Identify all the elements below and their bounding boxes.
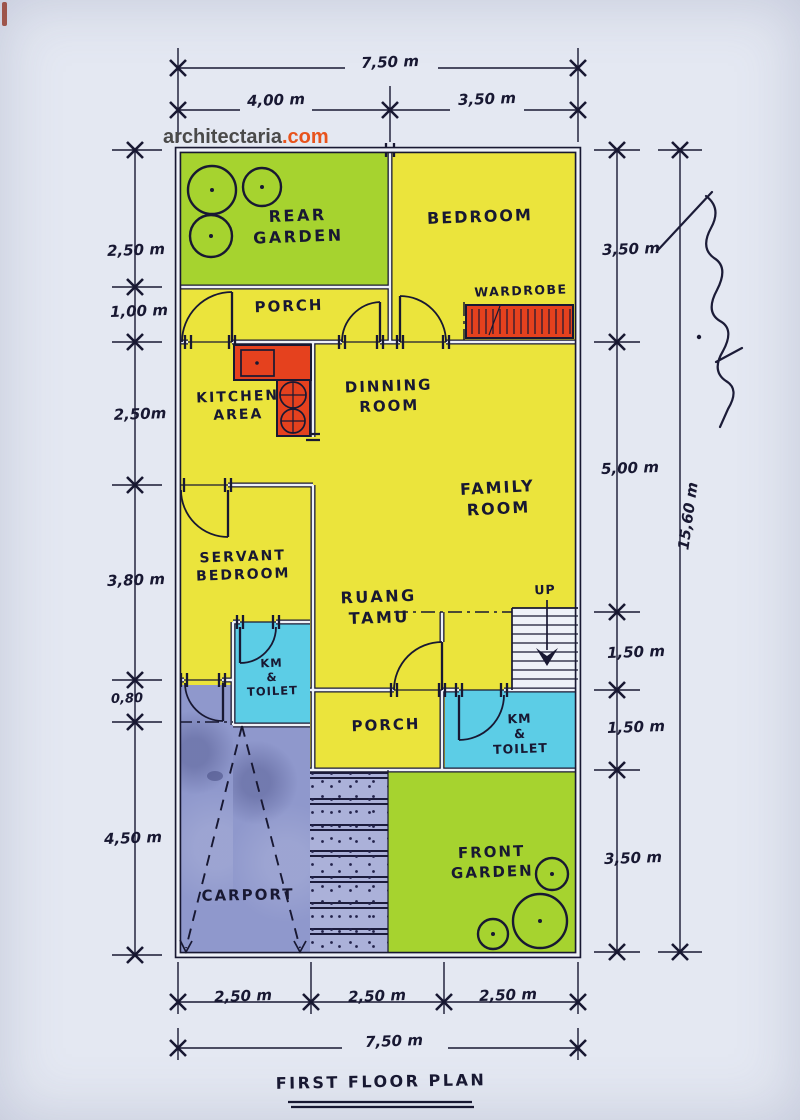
dim-top-total: 7,50 m bbox=[361, 52, 419, 72]
watermark-tld: .com bbox=[282, 126, 329, 148]
room-label-rear-garden: REARGARDEN bbox=[252, 204, 344, 249]
dim-left-1: 2,50 m bbox=[107, 240, 165, 260]
watermark: architectaria.com bbox=[163, 126, 329, 149]
dim-left-6: 4,50 m bbox=[104, 828, 162, 848]
dim-left-3: 2,50m bbox=[113, 404, 166, 424]
architect-signature bbox=[658, 192, 742, 427]
dim-bottom-1: 2,50 m bbox=[214, 986, 272, 1006]
room-label-km-toilet-right: KM&TOILET bbox=[492, 710, 548, 757]
room-label-km-toilet-left: KM&TOILET bbox=[246, 656, 298, 699]
dim-left-2: 1,00 m bbox=[110, 301, 168, 321]
watermark-name: architectaria bbox=[163, 126, 282, 148]
room-label-carport: CARPORT bbox=[201, 885, 294, 906]
room-label-bedroom: BEDROOM bbox=[427, 205, 534, 229]
dim-right-total: 15,60 m bbox=[674, 481, 701, 551]
room-label-dinning: DINNINGROOM bbox=[345, 375, 434, 417]
room-label-wardrobe: WARDROBE bbox=[474, 281, 568, 300]
walkway-floor bbox=[310, 770, 388, 955]
carport-floor-left bbox=[178, 685, 233, 955]
dim-right-5: 3,50 m bbox=[604, 848, 662, 868]
room-label-ruang-tamu: RUANGTAMU bbox=[340, 586, 418, 630]
title-underline bbox=[288, 1102, 474, 1107]
dim-top-left: 4,00 m bbox=[247, 90, 305, 110]
carport-floor bbox=[233, 725, 310, 955]
dim-bottom-2: 2,50 m bbox=[348, 986, 406, 1006]
dim-right-3: 1,50 m bbox=[607, 642, 665, 662]
room-label-family: FAMILYROOM bbox=[460, 476, 537, 521]
dim-right-2: 5,00 m bbox=[601, 458, 659, 478]
room-label-porch-bottom: PORCH bbox=[351, 715, 420, 737]
staircase-floor bbox=[512, 608, 578, 690]
room-label-servant: SERVANTBEDROOM bbox=[195, 546, 291, 586]
dim-left-5: 0,80 bbox=[111, 691, 144, 707]
dim-bottom-total: 7,50 m bbox=[365, 1031, 423, 1051]
page-title: FIRST FLOOR PLAN bbox=[276, 1070, 487, 1093]
room-label-kitchen: KITCHENAREA bbox=[196, 387, 280, 426]
bedroom-floor bbox=[390, 150, 578, 342]
dim-right-4: 1,50 m bbox=[607, 717, 665, 737]
floor-plan-scan: architectaria.com FIRST FLOOR PLAN REARG… bbox=[0, 0, 800, 1120]
room-label-porch-top: PORCH bbox=[254, 296, 323, 318]
dim-left-4: 3,80 m bbox=[107, 570, 165, 590]
dim-top-right: 3,50 m bbox=[458, 89, 516, 109]
dim-bottom-3: 2,50 m bbox=[479, 985, 537, 1005]
stairs-up-label: UP bbox=[534, 582, 556, 599]
scan-artifact bbox=[2, 2, 7, 26]
dim-right-1: 3,50 m bbox=[602, 239, 660, 259]
room-label-front-garden: FRONTGARDEN bbox=[450, 842, 534, 884]
